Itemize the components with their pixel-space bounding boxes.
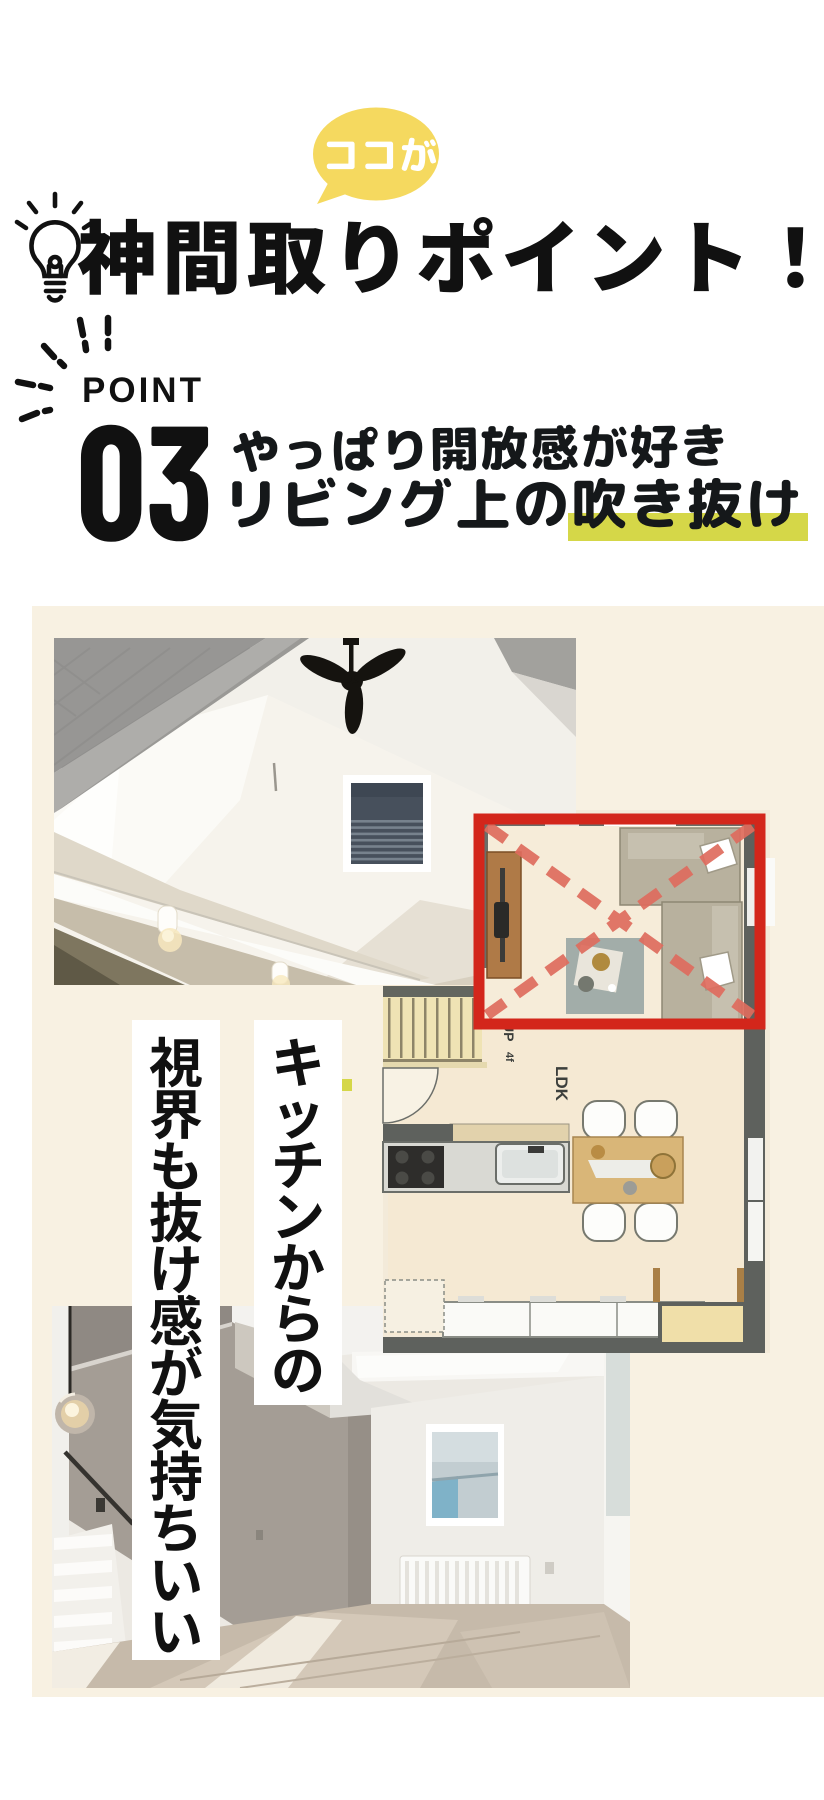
svg-text:POINT: POINT <box>82 371 204 410</box>
svg-text:4f: 4f <box>503 1052 515 1062</box>
svg-text:LDK: LDK <box>552 1066 571 1102</box>
